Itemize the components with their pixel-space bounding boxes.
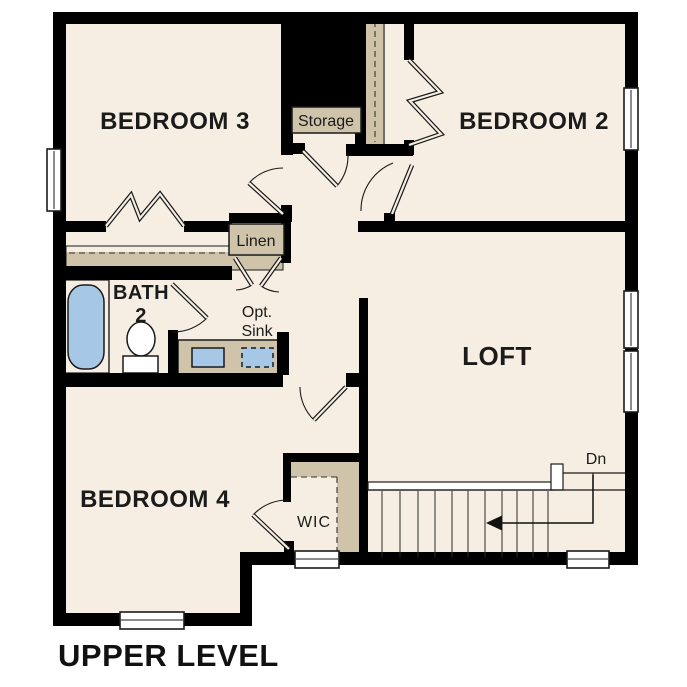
bedroom2-label: BEDROOM 2 <box>459 108 609 135</box>
storage-label: Storage <box>298 113 354 130</box>
floor-plan-drawing: BEDROOM 3 BEDROOM 2 BEDROOM 4 LOFT BATH … <box>0 0 687 687</box>
wall-bath-vanity-divider <box>168 330 178 375</box>
floor-plan-page: BEDROOM 3 BEDROOM 2 BEDROOM 4 LOFT BATH … <box>0 0 687 687</box>
loft-label: LOFT <box>462 341 532 371</box>
vanity-sink <box>192 348 224 367</box>
wall-bedroom3-bottom-right <box>184 221 232 232</box>
bedroom3-label: BEDROOM 3 <box>100 108 250 135</box>
wic-label: WIC <box>297 514 331 531</box>
bath-label-line2: 2 <box>135 305 147 327</box>
stairs-dn-label: Dn <box>586 451 606 468</box>
wall-left <box>53 12 66 626</box>
wall-vanity-right <box>277 332 289 375</box>
stair-half-wall-rail <box>368 482 554 490</box>
wall-bath-top <box>53 266 232 280</box>
opt-sink-label-line2: Sink <box>241 323 273 340</box>
wall-wic-top <box>283 453 368 462</box>
wall-wic-left-stub <box>283 453 291 502</box>
wall-bedroom2-left-upper <box>404 12 414 60</box>
bedroom4-label: BEDROOM 4 <box>80 486 230 513</box>
storage-chase-black-area <box>281 12 366 110</box>
wall-top <box>53 12 638 24</box>
wall-bedroom4-top <box>53 373 283 387</box>
plan-title: UPPER LEVEL <box>58 638 279 673</box>
toilet-bowl <box>127 322 155 356</box>
stair-newel-post <box>551 464 563 490</box>
bath-label-line1: BATH <box>113 282 169 304</box>
wall-bedroom4-step <box>240 552 252 626</box>
bathtub <box>68 285 104 369</box>
toilet-tank <box>123 356 158 373</box>
optional-sink-dashed <box>242 348 273 367</box>
opt-sink-label-line1: Opt. <box>242 304 272 321</box>
wall-loft-left <box>359 298 368 558</box>
wall-loft-top <box>358 221 626 232</box>
wall-storage-left <box>281 12 293 155</box>
wall-bedroom3-bottom-left <box>53 221 106 232</box>
linen-label: Linen <box>236 233 275 250</box>
